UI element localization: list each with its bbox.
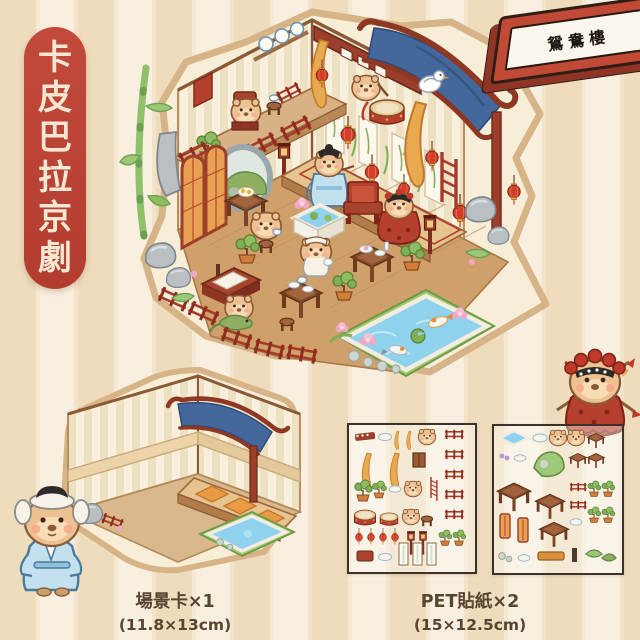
sticker-label: PET貼紙×2 xyxy=(360,588,580,613)
title-char: 皮 xyxy=(38,78,72,118)
scene-card-caption: 場景卡×1 (11.8×13cm) xyxy=(60,588,290,634)
title-char: 拉 xyxy=(38,158,72,198)
sheet1-items xyxy=(354,429,465,565)
product-title: 卡 皮 巴 拉 京 劇 xyxy=(24,27,86,289)
title-char: 卡 xyxy=(38,38,72,78)
scene-card-size: (11.8×13cm) xyxy=(60,616,290,634)
sticker-sheet-2 xyxy=(492,424,624,575)
sticker-caption: PET貼紙×2 (15×12.5cm) xyxy=(360,588,580,634)
main-scene-illustration xyxy=(116,6,552,380)
plaque-board: 鴛鴦樓 xyxy=(505,7,640,70)
sticker-sheet-1 xyxy=(347,423,477,574)
capybara-scholar-character xyxy=(8,484,96,598)
loft-chair-capybara xyxy=(231,92,260,130)
title-char: 劇 xyxy=(38,238,72,278)
waiter-capybara xyxy=(301,237,333,276)
plaque-text: 鴛鴦樓 xyxy=(546,23,612,56)
sheet2-items xyxy=(497,430,616,562)
title-char: 京 xyxy=(38,198,72,238)
sticker-size: (15×12.5cm) xyxy=(360,616,580,634)
title-char: 巴 xyxy=(38,118,72,158)
scene-card-label: 場景卡×1 xyxy=(60,588,290,613)
product-page: 卡 皮 巴 拉 京 劇 鴛鴦樓 xyxy=(0,0,640,640)
